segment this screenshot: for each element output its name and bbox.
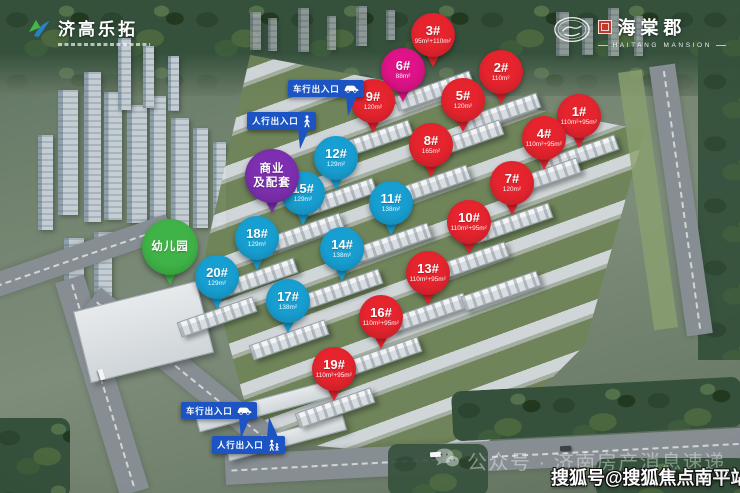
developer-logo-name: 济高乐拓 — [58, 15, 150, 40]
project-seal-icon — [598, 20, 612, 34]
pedestrian-entrance-top: 人行出入口 — [247, 112, 316, 130]
vehicle-entrance-top: 车行出入口 — [288, 80, 364, 97]
car-icon — [344, 84, 359, 93]
project-logo-subtext: HAITANG MANSION — [598, 42, 726, 49]
wechat-icon — [434, 447, 460, 475]
entrance-labels-layer: 车行出入口人行出入口车行出入口人行出入口 — [0, 0, 740, 493]
developer-logo-subtext — [58, 43, 150, 46]
project-logo: 海棠郡 HAITANG MANSION — [553, 14, 726, 49]
car-icon — [237, 406, 252, 415]
watermark-sohu: 搜狐号@搜狐焦点南平站 — [551, 464, 740, 490]
developer-logo-icon — [26, 15, 52, 46]
pedestrian-entrance-bottom: 人行出入口 — [212, 436, 285, 454]
pedestrian-icon — [303, 115, 311, 128]
developer-logo: 济高乐拓 — [26, 15, 150, 46]
entrance-label-text: 车行出入口 — [293, 83, 340, 95]
entrance-label-text: 车行出入口 — [186, 405, 233, 417]
pedestrian-family-icon — [268, 439, 280, 452]
vehicle-entrance-bottom: 车行出入口 — [181, 402, 257, 419]
aerial-masterplan-image: 3#95m²+110m²6#88m²2#110m²9#120m²5#120m²1… — [0, 0, 740, 493]
entrance-label-text: 人行出入口 — [217, 439, 264, 451]
entrance-label-text: 人行出入口 — [252, 115, 299, 127]
project-emblem-icon — [553, 15, 591, 49]
project-logo-name: 海棠郡 — [617, 14, 686, 40]
